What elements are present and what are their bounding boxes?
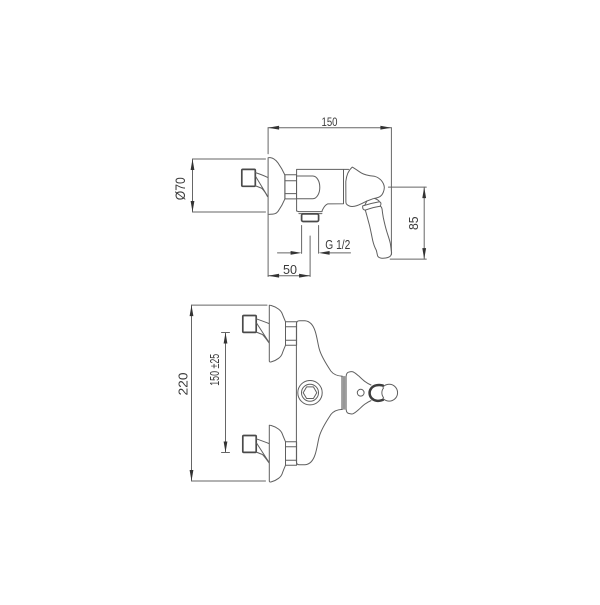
svg-text:G 1/2: G 1/2 <box>325 237 350 252</box>
svg-text:50: 50 <box>283 263 297 277</box>
svg-text:Ø70: Ø70 <box>173 177 188 200</box>
svg-text:85: 85 <box>406 217 421 231</box>
svg-text:150 ±25: 150 ±25 <box>208 354 222 386</box>
svg-text:150: 150 <box>322 115 338 129</box>
svg-text:220: 220 <box>175 373 190 396</box>
